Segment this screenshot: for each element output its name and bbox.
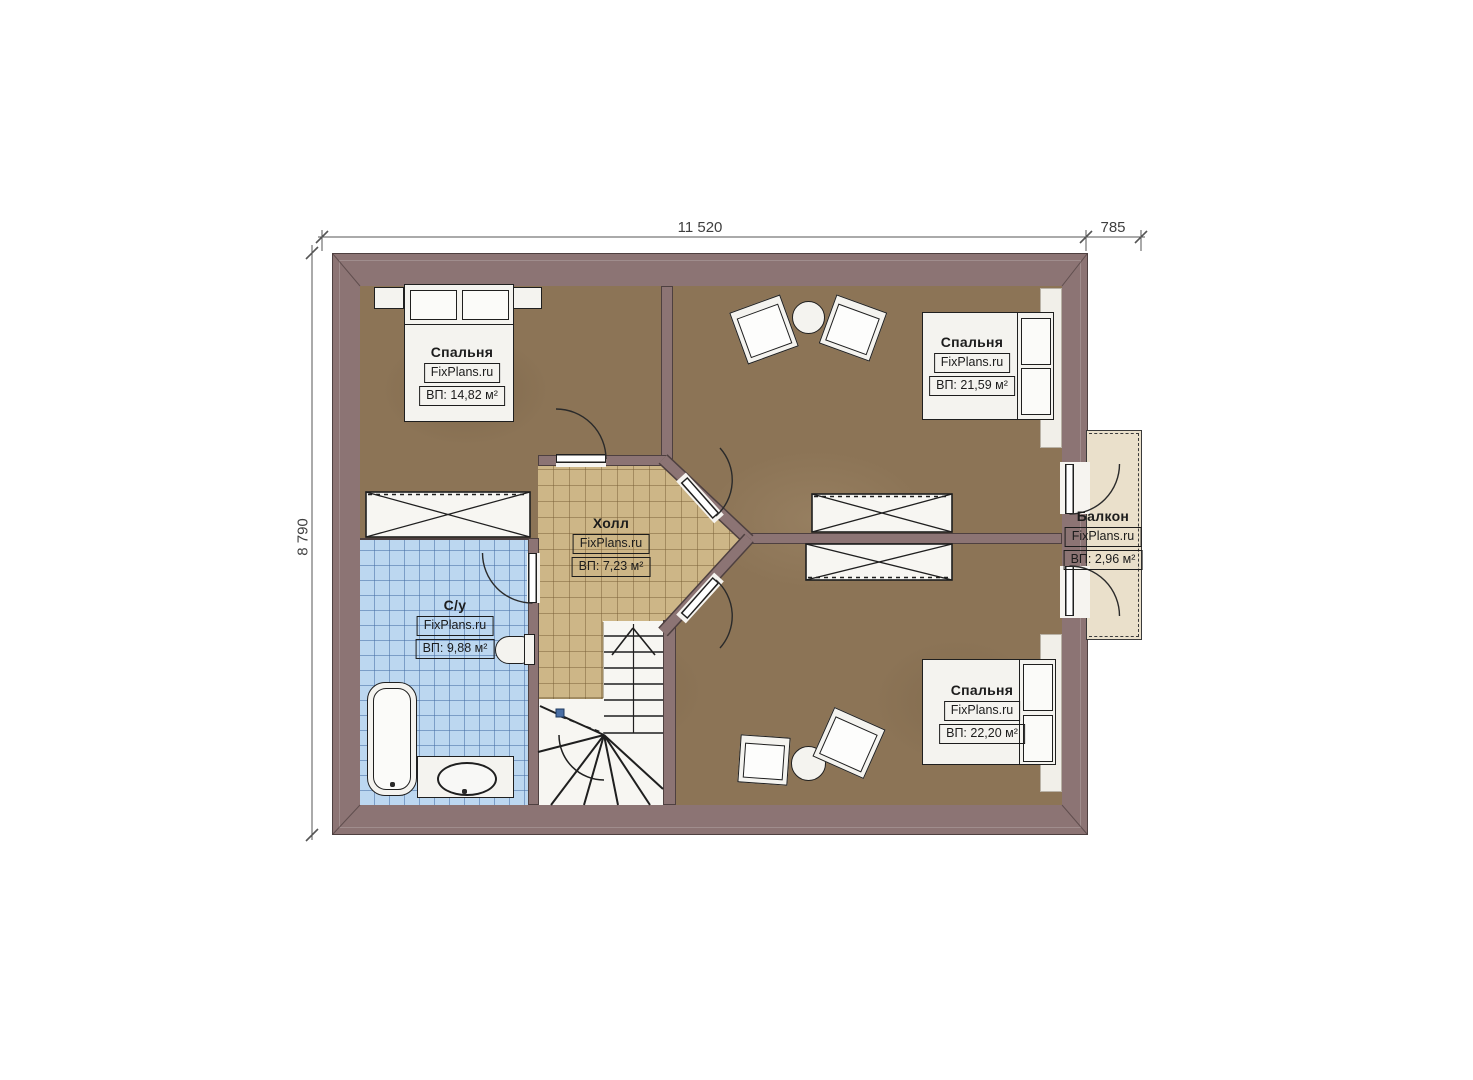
floor-plan-page: 11 520 785 8 790 Спальня FixPlans.ru ВП:… xyxy=(0,0,1473,1080)
wall-bedrooms-right xyxy=(740,533,1062,544)
doorway-balcony-upper xyxy=(1060,462,1090,514)
room-label-hall: Холл FixPlans.ru ВП: 7,23 м² xyxy=(572,515,651,577)
toilet-bowl xyxy=(495,636,527,664)
wall-bedrooms-top xyxy=(661,286,673,462)
sink-basin xyxy=(437,762,497,796)
watermark-fixplans: FixPlans.ru xyxy=(944,701,1021,721)
dimension-width-balcony: 785 xyxy=(1100,219,1125,236)
armchair xyxy=(737,734,790,785)
round-table xyxy=(792,301,825,334)
room-name: Балкон xyxy=(1077,508,1129,524)
room-label-bedroom-tr: Спальня FixPlans.ru ВП: 21,59 м² xyxy=(929,334,1015,396)
room-name: Спальня xyxy=(951,682,1014,698)
room-name: Холл xyxy=(593,515,629,531)
bathtub xyxy=(367,682,417,796)
room-area: ВП: 22,20 м² xyxy=(939,724,1025,744)
nightstand xyxy=(374,287,404,309)
doorway-balcony-lower xyxy=(1060,566,1090,618)
bathtub-inner xyxy=(373,688,411,790)
watermark-fixplans: FixPlans.ru xyxy=(934,353,1011,373)
floor-hall-strip xyxy=(538,629,603,699)
blanket-line xyxy=(405,324,513,325)
pillow xyxy=(410,290,457,320)
pillow xyxy=(1021,368,1051,415)
armchair-seat xyxy=(825,304,880,356)
room-area: ВП: 7,23 м² xyxy=(572,557,651,577)
vanity xyxy=(417,756,514,798)
room-label-bathroom: С/у FixPlans.ru ВП: 9,88 м² xyxy=(416,597,495,659)
pillow xyxy=(1021,318,1051,365)
stairwell-upper xyxy=(603,621,664,805)
room-area: ВП: 21,59 м² xyxy=(929,376,1015,396)
doorway-hall-bedroom-tl xyxy=(556,454,606,467)
watermark-fixplans: FixPlans.ru xyxy=(573,534,650,554)
pillow xyxy=(462,290,509,320)
drain xyxy=(390,782,395,787)
toilet-tank xyxy=(524,634,535,665)
faucet xyxy=(462,789,467,794)
room-name: С/у xyxy=(444,597,467,613)
room-area: ВП: 2,96 м² xyxy=(1064,550,1143,570)
blanket-line xyxy=(1017,313,1018,419)
pillow xyxy=(1023,664,1053,711)
room-name: Спальня xyxy=(941,334,1004,350)
dimension-width-main: 11 520 xyxy=(678,219,723,236)
armchair-seat xyxy=(737,304,793,359)
room-label-bedroom-tl: Спальня FixPlans.ru ВП: 14,82 м² xyxy=(419,344,505,406)
pillow xyxy=(1023,715,1053,762)
dimension-height: 8 790 xyxy=(295,518,312,556)
room-area: ВП: 9,88 м² xyxy=(416,639,495,659)
room-area: ВП: 14,82 м² xyxy=(419,386,505,406)
room-name: Спальня xyxy=(431,344,494,360)
watermark-fixplans: FixPlans.ru xyxy=(1065,527,1142,547)
room-label-bedroom-br: Спальня FixPlans.ru ВП: 22,20 м² xyxy=(939,682,1025,744)
room-label-balcony: Балкон FixPlans.ru ВП: 2,96 м² xyxy=(1064,508,1143,570)
watermark-fixplans: FixPlans.ru xyxy=(424,363,501,383)
doorway-hall-bathroom xyxy=(527,553,540,603)
armchair-seat xyxy=(743,743,785,781)
wall-stairwell xyxy=(663,620,676,805)
watermark-fixplans: FixPlans.ru xyxy=(417,616,494,636)
nightstand xyxy=(512,287,542,309)
stairwell-lower xyxy=(538,699,604,805)
